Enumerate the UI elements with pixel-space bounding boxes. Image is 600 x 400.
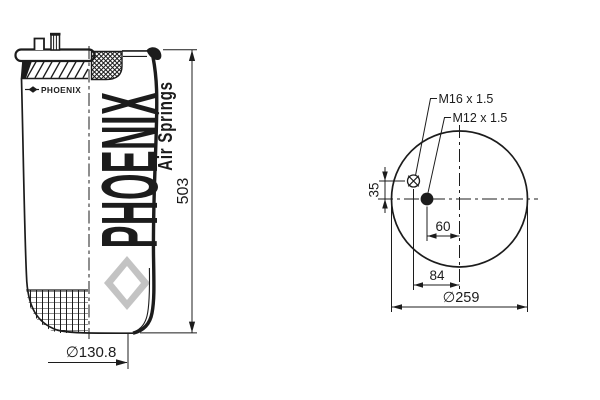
phoenix-logo-text: PHOENIX <box>41 85 81 95</box>
m16-thread-label: M16 x 1.5 <box>439 92 494 106</box>
left-stud <box>35 39 45 51</box>
bellows-fold-band <box>22 61 89 79</box>
dim-35: 35 <box>367 167 406 213</box>
phoenix-logo-diamond-icon <box>29 86 38 92</box>
top-view: M16 x 1.5 M12 x 1.5 35 60 84 <box>367 92 539 312</box>
bottom-mesh-zone <box>26 290 88 333</box>
stud-marker-crossed-circle-icon <box>408 175 420 187</box>
dim-60: 60 <box>427 207 460 242</box>
m12-thread-label: M12 x 1.5 <box>453 111 508 125</box>
phoenix-logo: PHOENIX <box>25 85 81 95</box>
watermark: PHOENIX Air Springs <box>85 81 176 310</box>
air-port-marker-dot-icon <box>421 193 434 206</box>
air-spring-technical-drawing: PHOENIX Air Springs <box>0 0 600 400</box>
threaded-stud <box>50 33 61 50</box>
dim-bottom-diameter: ∅130.8 <box>48 334 128 369</box>
watermark-diamond-icon <box>104 256 150 310</box>
dim-35-label: 35 <box>367 182 382 197</box>
rubber-bead-section <box>92 52 123 80</box>
m12-leader-line <box>428 118 451 193</box>
technical-drawing-page: PHOENIX Air Springs <box>0 0 600 400</box>
dim-bottom-diameter-label: ∅130.8 <box>66 344 117 361</box>
m16-leader-line <box>416 99 438 176</box>
dim-84-label: 84 <box>429 268 445 283</box>
dim-outer-diameter-label: ∅259 <box>443 290 480 306</box>
dim-84: 84 <box>414 189 460 290</box>
top-plate <box>16 50 95 62</box>
dim-height-label: 503 <box>175 178 192 205</box>
dim-60-label: 60 <box>435 219 450 234</box>
